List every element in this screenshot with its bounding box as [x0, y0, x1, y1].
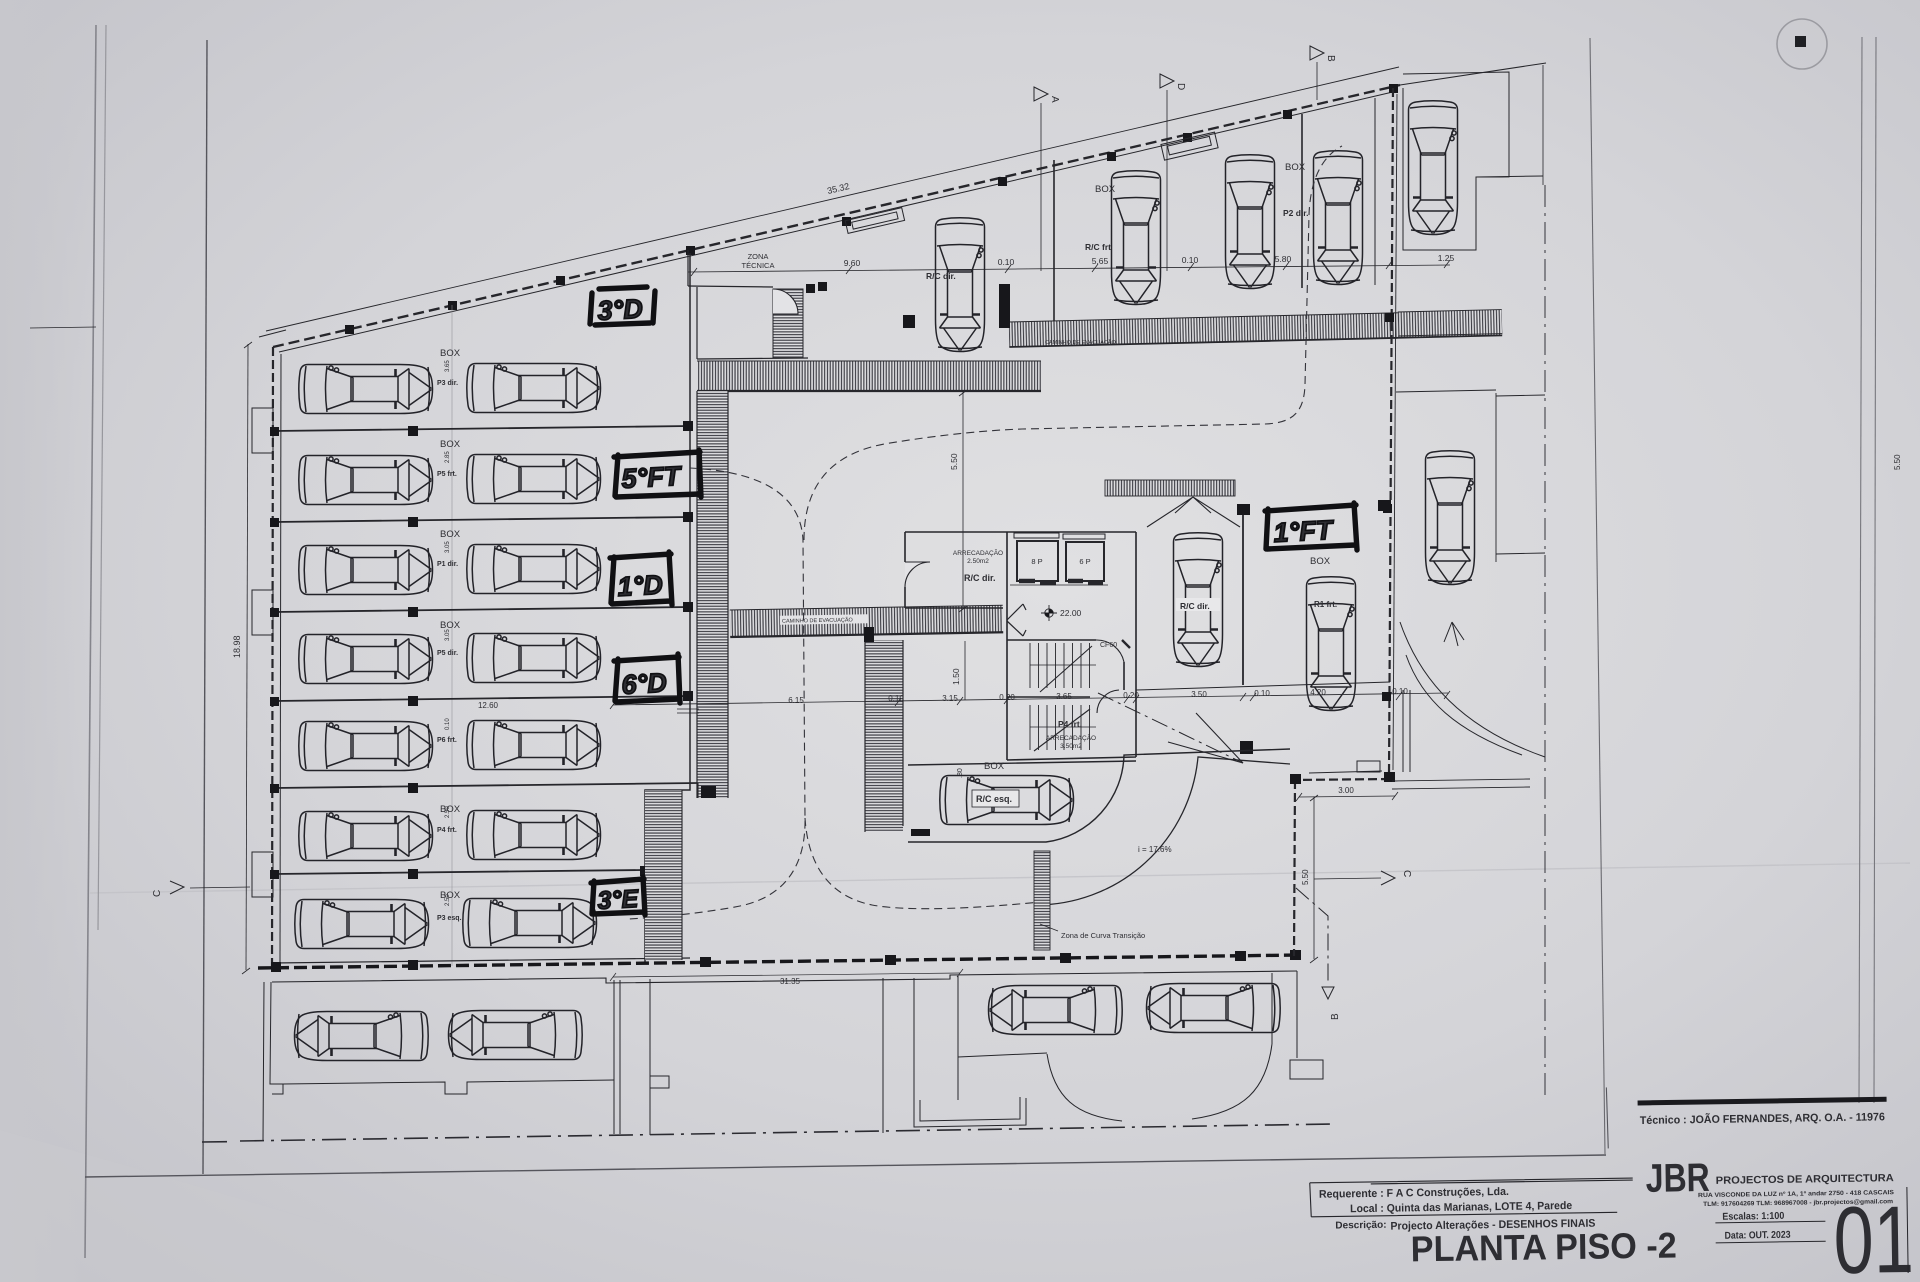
svg-text:Descrição:: Descrição: — [1335, 1220, 1386, 1232]
svg-text:3.05: 3.05 — [445, 541, 451, 553]
svg-text:5.65: 5.65 — [1092, 256, 1109, 266]
svg-text:3.65: 3.65 — [445, 360, 451, 372]
svg-text:5.50: 5.50 — [949, 453, 959, 470]
svg-text:3.50: 3.50 — [1191, 690, 1207, 699]
svg-text:CAMINHO DE EVACUAÇÃO: CAMINHO DE EVACUAÇÃO — [1045, 339, 1117, 346]
svg-text:P5 dir.: P5 dir. — [437, 650, 458, 657]
svg-text:R1 frt.: R1 frt. — [1314, 600, 1337, 609]
svg-text:BOX: BOX — [440, 348, 461, 359]
svg-text:BOX: BOX — [1095, 184, 1116, 195]
svg-text:0.10: 0.10 — [1254, 689, 1270, 698]
svg-text:R/C dir.: R/C dir. — [926, 271, 956, 281]
svg-text:B: B — [1325, 55, 1336, 62]
svg-text:D: D — [1175, 83, 1186, 90]
svg-text:PLANTA PISO -2: PLANTA PISO -2 — [1410, 1224, 1677, 1269]
svg-text:3.05: 3.05 — [445, 629, 451, 641]
svg-text:5.50: 5.50 — [1301, 869, 1310, 885]
svg-text:6°D: 6°D — [621, 668, 668, 700]
svg-text:2.50: 2.50 — [445, 806, 451, 818]
svg-text:ARRECADAÇÃO: ARRECADAÇÃO — [953, 548, 1003, 557]
svg-text:3.50m2: 3.50m2 — [1060, 743, 1082, 750]
svg-text:0.10: 0.10 — [445, 718, 451, 730]
svg-text:ZONA: ZONA — [748, 252, 769, 261]
svg-text:1°D: 1°D — [617, 570, 664, 602]
svg-text:B: B — [1330, 1013, 1341, 1020]
svg-text:3.65: 3.65 — [1056, 692, 1072, 701]
svg-text:1.25: 1.25 — [1438, 253, 1455, 263]
svg-text:0.10: 0.10 — [888, 694, 904, 703]
svg-text:TÉCNICA: TÉCNICA — [742, 261, 775, 270]
svg-text:1°FT: 1°FT — [1273, 515, 1336, 548]
svg-text:BOX: BOX — [440, 529, 461, 540]
svg-text:R/C dir.: R/C dir. — [1180, 601, 1210, 611]
svg-text:0.20: 0.20 — [999, 693, 1015, 702]
svg-text:.80: .80 — [957, 768, 964, 778]
svg-text:5.80: 5.80 — [1275, 254, 1292, 264]
svg-text:5°FT: 5°FT — [621, 461, 684, 494]
svg-text:6.15: 6.15 — [788, 696, 804, 705]
svg-text:BOX: BOX — [1285, 162, 1306, 173]
svg-text:P4 frt.: P4 frt. — [1058, 719, 1082, 729]
svg-text:P6 frt.: P6 frt. — [437, 737, 457, 744]
svg-text:Escalas: 1:100: Escalas: 1:100 — [1722, 1211, 1785, 1223]
svg-text:R/C frt: R/C frt — [1085, 242, 1111, 252]
svg-text:22.00: 22.00 — [1060, 608, 1082, 618]
svg-text:6 P: 6 P — [1079, 557, 1090, 566]
svg-text:0.10: 0.10 — [1392, 687, 1408, 696]
svg-text:P4 frt.: P4 frt. — [437, 827, 457, 834]
svg-text:BOX: BOX — [984, 761, 1005, 772]
svg-text:2.50m2: 2.50m2 — [967, 558, 989, 565]
svg-text:CAMINHO DE EVACUAÇÃO: CAMINHO DE EVACUAÇÃO — [782, 616, 854, 624]
svg-text:8 P: 8 P — [1031, 557, 1042, 566]
svg-text:P3 dir.: P3 dir. — [437, 380, 458, 387]
svg-text:4.20: 4.20 — [1310, 688, 1326, 697]
svg-text:A: A — [1049, 96, 1060, 103]
svg-text:3°D: 3°D — [597, 294, 644, 326]
svg-text:1.50: 1.50 — [951, 668, 961, 685]
svg-text:C: C — [152, 890, 163, 897]
svg-text:0.10: 0.10 — [998, 257, 1015, 267]
svg-text:0.10: 0.10 — [1182, 255, 1199, 265]
svg-text:3.15: 3.15 — [942, 694, 958, 703]
svg-text:i = 17.6%: i = 17.6% — [1138, 845, 1172, 854]
svg-text:BOX: BOX — [1310, 556, 1331, 567]
svg-text:R/C esq.: R/C esq. — [976, 794, 1012, 804]
svg-text:18.98: 18.98 — [232, 635, 242, 658]
svg-text:3.00: 3.00 — [1338, 786, 1354, 795]
svg-text:P5 frt.: P5 frt. — [437, 471, 457, 478]
svg-text:ARRECADAÇÃO: ARRECADAÇÃO — [1046, 733, 1096, 742]
svg-text:12.60: 12.60 — [478, 701, 499, 710]
svg-text:BOX: BOX — [440, 439, 461, 450]
svg-text:Zona de Curva Transição: Zona de Curva Transição — [1061, 931, 1145, 940]
svg-text:P3 esq.: P3 esq. — [437, 915, 462, 922]
svg-text:R/C dir.: R/C dir. — [964, 573, 996, 583]
svg-text:3°E: 3°E — [597, 885, 640, 915]
svg-text:P2 dir.: P2 dir. — [1283, 208, 1309, 218]
svg-text:C: C — [1401, 870, 1412, 877]
svg-text:CF60: CF60 — [1100, 642, 1117, 649]
svg-text:Data: OUT. 2023: Data: OUT. 2023 — [1725, 1230, 1792, 1242]
svg-text:5.50: 5.50 — [1893, 454, 1902, 470]
svg-text:0.20: 0.20 — [1123, 691, 1139, 700]
svg-text:2.50: 2.50 — [445, 894, 451, 906]
svg-text:31.35: 31.35 — [780, 977, 801, 986]
svg-text:2.85: 2.85 — [445, 451, 451, 463]
svg-text:P1 dir.: P1 dir. — [437, 561, 458, 568]
svg-text:9.60: 9.60 — [844, 258, 861, 268]
